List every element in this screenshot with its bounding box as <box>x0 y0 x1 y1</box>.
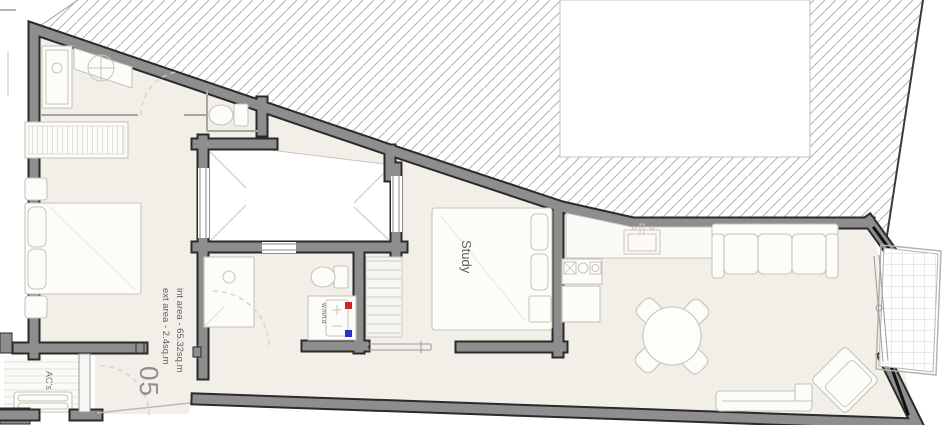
washer-cold-supply-point <box>345 330 352 337</box>
double-bed <box>25 203 141 294</box>
toilet2-cistern <box>334 266 348 288</box>
entrance-ac-divider-wall <box>79 354 90 412</box>
external-area-label: ext area - 2.4sq.m <box>160 288 171 365</box>
shaft-void <box>208 150 392 243</box>
kitchen-base-cabinet <box>562 286 600 322</box>
dining-area <box>632 295 711 376</box>
sofa-cushion-3 <box>792 234 826 274</box>
dining-table <box>643 307 701 365</box>
wc-toilet-bowl <box>209 105 233 125</box>
bedroom-door-jamb-left <box>136 343 144 353</box>
sofa-arm-left <box>712 234 724 278</box>
study-room-label: Study <box>459 240 474 274</box>
study-bed <box>432 208 552 330</box>
wc-toilet-cistern <box>234 104 248 126</box>
washer-dryer-label: w.m/t.d <box>320 302 327 324</box>
wardrobe-rail <box>29 126 124 154</box>
floor-plan-page: w.m/t.d Study <box>0 0 946 425</box>
lightwell-shaft <box>208 150 392 243</box>
shower2-tray <box>204 257 254 327</box>
bedroom-door-jamb-right <box>193 347 201 357</box>
nightstand-bottom <box>25 296 47 318</box>
toilet2-bowl <box>311 267 335 287</box>
neighbour-unit-void <box>560 0 810 157</box>
floor-plan-drawing: w.m/t.d Study <box>0 0 946 425</box>
washer-dryer: w.m/t.d <box>308 296 356 340</box>
unit-number-label: 05 <box>134 366 164 397</box>
exterior-wall-stub-left <box>0 333 12 353</box>
sofa-cushion-1 <box>724 234 758 274</box>
balcony <box>874 245 941 375</box>
study-room: Study <box>432 208 552 330</box>
sofa-cushion-2 <box>758 234 792 274</box>
sofa-arm-right <box>826 234 838 278</box>
nightstand-top <box>25 178 47 200</box>
ac-units-label: AC's <box>44 371 54 390</box>
washer-hot-supply-point <box>345 302 352 309</box>
internal-area-label: int area - 65.32sq.m <box>174 288 185 373</box>
side-table <box>795 384 812 401</box>
